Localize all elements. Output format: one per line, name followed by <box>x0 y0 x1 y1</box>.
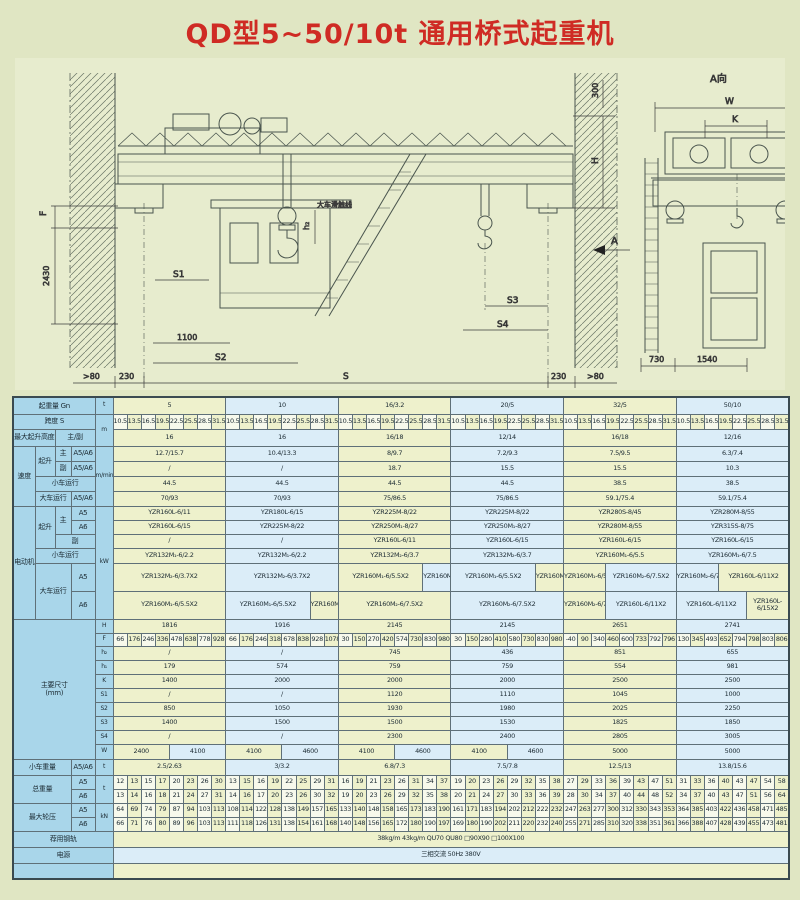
table-cell: 981 <box>676 660 789 674</box>
table-cell: 165 <box>324 803 338 817</box>
table-cell: 422 <box>718 803 732 817</box>
table-cell: 150 <box>465 633 479 646</box>
table-cell: 25.5 <box>183 414 197 429</box>
table-cell: 12/16 <box>676 429 789 446</box>
table-cell: 600 <box>620 633 634 646</box>
table-cell: 37 <box>437 775 451 789</box>
table-header-cell: S4 <box>95 730 113 744</box>
table-cell: 48 <box>648 789 662 803</box>
table-cell: 220 <box>521 817 535 831</box>
table-header-cell: 速度 <box>13 446 35 506</box>
table-cell: 13 <box>127 775 141 789</box>
table-cell: 980 <box>549 633 563 646</box>
table-cell: 47 <box>648 775 662 789</box>
table-header-cell: h₂ <box>95 646 113 660</box>
table-cell: 14 <box>226 789 240 803</box>
table-cell: 31.5 <box>662 414 676 429</box>
table-cell: 89 <box>169 817 183 831</box>
table-cell: 806 <box>775 633 789 646</box>
table-cell: 246 <box>141 633 155 646</box>
table-cell: 1500 <box>338 716 451 730</box>
table-cell: 202 <box>507 803 521 817</box>
table-row: 副A5/A6//18.715.515.510.3 <box>13 461 789 476</box>
table-cell: 40 <box>718 775 732 789</box>
table-cell: 30 <box>212 775 226 789</box>
table-cell: 1825 <box>564 716 677 730</box>
table-cell: 169 <box>451 817 465 831</box>
side-view-title: A向 <box>710 72 727 85</box>
table-cell: YZR160M₁-6/7.5X2 <box>535 563 563 591</box>
table-cell: 114 <box>240 803 254 817</box>
table-row: A6YZR160M₁-6/5.5X2YZR160M₁-6/5.5X2YZR160… <box>13 591 789 619</box>
table-cell: 25.5 <box>521 414 535 429</box>
table-cell: 36 <box>535 789 549 803</box>
table-header-cell: m <box>95 414 113 446</box>
table-row: K140020002000200025002500 <box>13 674 789 688</box>
table-cell: YZR160L-6/11 <box>113 506 226 520</box>
table-cell: 2805 <box>564 730 677 744</box>
table-row: 跨度 Sm10.513.516.519.522.525.528.531.510.… <box>13 414 789 429</box>
table-cell: 75/86.5 <box>338 491 451 506</box>
table-cell: 15.5 <box>564 461 677 476</box>
main-hook-icon <box>278 230 298 258</box>
table-cell: 21 <box>366 775 380 789</box>
table-cell: 388 <box>690 817 704 831</box>
dim-label-h2: h₂ <box>302 222 311 230</box>
table-cell: 5 <box>113 397 226 414</box>
elevation-view <box>70 73 617 384</box>
table-cell: 180 <box>409 817 423 831</box>
dim-label-s3: S3 <box>507 296 518 306</box>
table-cell: 36 <box>606 775 620 789</box>
table-header-cell: A6 <box>71 817 95 831</box>
table-header-cell: A5/A6 <box>71 759 95 775</box>
table-cell: 128 <box>268 803 282 817</box>
table-row: 最大起升高度主/副161616/1812/1416/1812/16 <box>13 429 789 446</box>
table-cell: 3/3.2 <box>226 759 339 775</box>
table-cell: 638 <box>183 633 197 646</box>
table-cell: 190 <box>423 817 437 831</box>
elevation-dimensions: F 2430 S1 1100 S2 >80 230 S 230 >80 300 … <box>39 80 630 388</box>
table-header-cell: A5 <box>71 775 95 789</box>
table-cell: 4100 <box>169 744 225 759</box>
table-cell: 410 <box>493 633 507 646</box>
table-header-cell <box>13 863 113 879</box>
table-cell: 171 <box>465 803 479 817</box>
dim-label-730: 730 <box>649 355 664 364</box>
right-wall-hatch <box>575 73 617 368</box>
table-cell: 33 <box>521 789 535 803</box>
table-cell: 15 <box>240 775 254 789</box>
table-cell: 310 <box>606 817 620 831</box>
table-cell: 1980 <box>451 702 564 716</box>
table-cell: 75/86.5 <box>451 491 564 506</box>
table-cell: YZR132M₁-6/2.2 <box>226 548 339 563</box>
table-cell: 436 <box>732 803 746 817</box>
table-cell: 149 <box>296 803 310 817</box>
dim-label-230-right: 230 <box>551 372 566 381</box>
table-cell: 28.5 <box>648 414 662 429</box>
table-cell: 574 <box>226 660 339 674</box>
table-cell: 25.5 <box>634 414 648 429</box>
table-cell: 345 <box>690 633 704 646</box>
table-cell: 554 <box>564 660 677 674</box>
table-cell: YZR250M₁-8/27 <box>338 520 451 534</box>
table-cell: YZR160L-6/15X2 <box>747 591 789 619</box>
table-header-cell: 起重量 Gn <box>13 397 95 414</box>
table-cell: 59.1/75.4 <box>564 491 677 506</box>
table-cell: / <box>226 730 339 744</box>
table-header-cell: 电动机 <box>13 506 35 619</box>
table-cell: 37 <box>606 789 620 803</box>
table-cell: 30 <box>578 789 592 803</box>
table-cell: 13.5 <box>465 414 479 429</box>
table-cell: 247 <box>564 803 578 817</box>
table-cell: 126 <box>254 817 268 831</box>
table-row: 电动机起升主A5kWYZR160L-6/11YZR180L-6/15YZR225… <box>13 506 789 520</box>
table-header-cell: A5/A6 <box>71 446 95 461</box>
table-cell: 96 <box>183 817 197 831</box>
table-cell: 343 <box>648 803 662 817</box>
table-cell: 157 <box>310 803 324 817</box>
table-cell: 759 <box>451 660 564 674</box>
table-cell: 2000 <box>451 674 564 688</box>
table-cell: 22.5 <box>282 414 296 429</box>
table-header-cell: W <box>95 744 113 759</box>
table-cell: 20 <box>352 789 366 803</box>
table-header-cell: S3 <box>95 716 113 730</box>
table-cell: 16/3.2 <box>338 397 451 414</box>
table-cell: 176 <box>127 633 141 646</box>
table-cell: 22.5 <box>507 414 521 429</box>
table-cell: 493 <box>704 633 718 646</box>
table-header-cell: h₁ <box>95 660 113 674</box>
table-cell: 31 <box>409 775 423 789</box>
table-cell: YZR160M₁-6/7.5X2 <box>310 591 338 619</box>
table-cell: 28.5 <box>423 414 437 429</box>
table-cell: 71 <box>127 817 141 831</box>
table-cell: 30 <box>338 633 352 646</box>
table-cell: 436 <box>451 646 564 660</box>
cab-and-stairs <box>211 154 426 316</box>
table-header-cell: 跨度 S <box>13 414 95 429</box>
table-cell: 34 <box>423 775 437 789</box>
table-header-cell: A5/A6 <box>71 491 95 506</box>
table-cell: 19 <box>268 775 282 789</box>
crane-drawing-area: F 2430 S1 1100 S2 >80 230 S 230 >80 300 … <box>15 58 785 390</box>
table-cell: YZR225M-8/22 <box>338 506 451 520</box>
table-row: h₁179574759759554981 <box>13 660 789 674</box>
table-cell: 33 <box>592 775 606 789</box>
table-cell: 2.5/2.63 <box>113 759 226 775</box>
table-row: h₂//745436851655 <box>13 646 789 660</box>
table-cell: 148 <box>352 817 366 831</box>
table-cell: 471 <box>761 803 775 817</box>
table-row: 副//YZR160L-6/11YZR160L-6/15YZR160L-6/15Y… <box>13 534 789 548</box>
table-cell: YZR160L-6/15 <box>676 534 789 548</box>
table-header-cell: A6 <box>71 789 95 803</box>
table-cell: YZR132M₂-6/3.7X2 <box>226 563 339 591</box>
table-cell: 108 <box>226 803 240 817</box>
table-header-cell: 最大起升高度 <box>13 429 55 446</box>
view-arrow-label: A <box>611 236 618 247</box>
table-cell: 16.5 <box>141 414 155 429</box>
table-cell: 12/14 <box>451 429 564 446</box>
table-cell: / <box>113 730 226 744</box>
table-cell: 20 <box>465 775 479 789</box>
table-cell: 4600 <box>395 744 451 759</box>
table-cell: 222 <box>535 803 549 817</box>
table-cell: 13.5 <box>690 414 704 429</box>
table-cell: 150 <box>352 633 366 646</box>
table-cell: 16/18 <box>564 429 677 446</box>
table-cell: 32 <box>409 789 423 803</box>
table-cell: 759 <box>338 660 451 674</box>
table-cell: 20 <box>451 789 465 803</box>
table-cell: 652 <box>718 633 732 646</box>
table-cell: 403 <box>704 803 718 817</box>
table-header-cell: t <box>95 397 113 414</box>
table-cell: 1916 <box>226 619 339 633</box>
table-header-cell: 小车运行 <box>35 476 95 491</box>
table-header-cell: 主要尺寸 (mm) <box>13 619 95 759</box>
table-cell: 655 <box>676 646 789 660</box>
table-cell: 730 <box>409 633 423 646</box>
table-cell: 285 <box>592 817 606 831</box>
table-cell: 928 <box>212 633 226 646</box>
table-cell: 246 <box>254 633 268 646</box>
table-cell: 13 <box>226 775 240 789</box>
table-cell: 30 <box>310 789 324 803</box>
hook-pulley <box>278 207 296 225</box>
table-cell: 18 <box>155 789 169 803</box>
table-header-cell: A5 <box>71 506 95 520</box>
table-cell: / <box>113 688 226 702</box>
table-cell: 428 <box>718 817 732 831</box>
table-cell: 35 <box>535 775 549 789</box>
table-cell: 1110 <box>451 688 564 702</box>
table-cell: 22.5 <box>395 414 409 429</box>
table-cell: 1000 <box>676 688 789 702</box>
dim-label-s1: S1 <box>173 270 184 280</box>
table-cell: 36 <box>704 775 718 789</box>
table-cell: 17 <box>155 775 169 789</box>
table-cell: YZR132M₂-6/3.7 <box>338 548 451 563</box>
table-cell: 851 <box>564 646 677 660</box>
table-cell: 19.5 <box>718 414 732 429</box>
table-row: 总重量A5t1213151720232630131516192225293116… <box>13 775 789 789</box>
table-cell: 40 <box>704 789 718 803</box>
table-cell: 5000 <box>564 744 677 759</box>
table-cell: 168 <box>324 817 338 831</box>
table-cell: 4100 <box>451 744 507 759</box>
table-cell: 31 <box>324 775 338 789</box>
table-row: 大车运行A5/A670/9370/9375/86.575/86.559.1/75… <box>13 491 789 506</box>
table-cell: 38.5 <box>564 476 677 491</box>
table-cell: YZR160L-6/15 <box>564 534 677 548</box>
table-cell: 2300 <box>338 730 451 744</box>
table-cell: 12 <box>113 775 127 789</box>
table-cell: 13.5 <box>240 414 254 429</box>
table-cell: 31.5 <box>437 414 451 429</box>
table-cell: 103 <box>198 803 212 817</box>
table-cell: 27 <box>564 775 578 789</box>
table-cell: 66 <box>113 817 127 831</box>
table-cell: 16.5 <box>704 414 718 429</box>
table-cell: 458 <box>747 803 761 817</box>
table-cell: 1045 <box>564 688 677 702</box>
table-cell: 29 <box>310 775 324 789</box>
table-cell: 733 <box>634 633 648 646</box>
table-cell: 13.5 <box>352 414 366 429</box>
table-row: F661762463364786387789286617624631867883… <box>13 633 789 646</box>
table-cell: 353 <box>662 803 676 817</box>
table-cell: 156 <box>366 817 380 831</box>
table-row <box>13 863 789 879</box>
table-cell: 138 <box>282 803 296 817</box>
table-cell: YZR132M₁-6/2.2 <box>113 548 226 563</box>
table-cell: 2000 <box>226 674 339 688</box>
table-header-cell: kN <box>95 803 113 831</box>
table-cell: 1078 <box>324 633 338 646</box>
table-cell: 90 <box>578 633 592 646</box>
table-cell: 16.5 <box>254 414 268 429</box>
table-cell: 31 <box>676 775 690 789</box>
table-cell: 10.5 <box>226 414 240 429</box>
table-cell: 19.5 <box>493 414 507 429</box>
table-cell: 10.5 <box>564 414 578 429</box>
table-cell: YZR160L-6/11X2 <box>676 591 746 619</box>
table-row: 主要尺寸 (mm)H181619162145214526512741 <box>13 619 789 633</box>
table-cell: 118 <box>240 817 254 831</box>
table-cell: 140 <box>338 817 352 831</box>
table-cell: 51 <box>662 775 676 789</box>
table-cell: 197 <box>437 817 451 831</box>
table-cell: 23 <box>366 789 380 803</box>
side-view <box>645 132 785 353</box>
table-cell: 18.7 <box>338 461 451 476</box>
table-cell: 27 <box>198 789 212 803</box>
table-header-cell: kW <box>95 506 113 619</box>
table-cell: 232 <box>535 817 549 831</box>
table-cell: 4100 <box>338 744 394 759</box>
table-cell: 16 <box>113 429 226 446</box>
table-cell: 580 <box>507 633 521 646</box>
table-cell: 10.5 <box>113 414 127 429</box>
table-cell: 202 <box>493 817 507 831</box>
table-cell: 33 <box>690 775 704 789</box>
table-header-cell: 主 <box>55 506 71 534</box>
table-cell: 336 <box>155 633 169 646</box>
table-cell: 7.5/7.8 <box>451 759 564 775</box>
table-cell: YZR160M₂-6/7.5X2 <box>338 591 451 619</box>
table-cell: 43 <box>634 775 648 789</box>
table-cell: 173 <box>409 803 423 817</box>
table-cell: YZR280M-8/55 <box>564 520 677 534</box>
table-header-cell: 主 <box>55 446 71 461</box>
table-cell: YZR160M₁-6/5.5 <box>564 548 677 563</box>
table-cell: 4600 <box>507 744 563 759</box>
table-cell: 460 <box>606 633 620 646</box>
side-view-dimensions: A向 W K 730 1540 <box>641 72 785 372</box>
table-row: 最大轮压A5kN64697479879410311310811412212813… <box>13 803 789 817</box>
table-cell: YZR160M₁-6/5.5X2 <box>226 591 310 619</box>
table-cell: 76 <box>141 817 155 831</box>
table-row: A613141618212427311416172023263032192023… <box>13 789 789 803</box>
table-cell: 478 <box>169 633 183 646</box>
table-cell: 19.5 <box>606 414 620 429</box>
table-cell: 74 <box>141 803 155 817</box>
dim-label-230-left: 230 <box>119 372 134 381</box>
table-cell: 1500 <box>226 716 339 730</box>
table-cell: 172 <box>395 817 409 831</box>
conductor-line-label: 大车滑触线 <box>317 200 352 209</box>
table-cell: 194 <box>493 803 507 817</box>
table-cell: 34 <box>676 789 690 803</box>
table-cell: 21 <box>169 789 183 803</box>
trolley-assembly <box>165 113 298 258</box>
table-cell: 1850 <box>676 716 789 730</box>
table-cell: 16 <box>254 775 268 789</box>
table-cell: 2400 <box>451 730 564 744</box>
table-row: 小车重量A5/A6t2.5/2.633/3.26.8/7.37.5/7.812.… <box>13 759 789 775</box>
table-cell: 7.5/9.5 <box>564 446 677 461</box>
table-cell: 2400 <box>113 744 169 759</box>
table-cell: 32 <box>521 775 535 789</box>
table-header-cell: A6 <box>71 520 95 534</box>
table-cell: 43 <box>718 789 732 803</box>
table-header-cell: H <box>95 619 113 633</box>
table-cell: 25.5 <box>409 414 423 429</box>
table-cell: 47 <box>732 789 746 803</box>
table-cell: 796 <box>662 633 676 646</box>
table-cell: 2651 <box>564 619 677 633</box>
table-cell: 232 <box>549 803 563 817</box>
table-cell: 31.5 <box>324 414 338 429</box>
table-cell: 29 <box>395 789 409 803</box>
table-cell: 13.8/15.6 <box>676 759 789 775</box>
table-cell: 165 <box>395 803 409 817</box>
table-cell: 2145 <box>338 619 451 633</box>
table-cell: 51 <box>747 789 761 803</box>
table-cell: 23 <box>183 775 197 789</box>
table-cell: YZR225M-8/22 <box>226 520 339 534</box>
table-cell: 8/9.7 <box>338 446 451 461</box>
table-cell: 64 <box>775 789 789 803</box>
ladder <box>645 158 658 353</box>
table-header-cell: m/min <box>95 446 113 506</box>
table-cell: 69 <box>127 803 141 817</box>
table-cell: 103 <box>198 817 212 831</box>
table-cell: 31 <box>212 789 226 803</box>
table-row: A666717680899610311311111812613113815416… <box>13 817 789 831</box>
table-cell: 13.5 <box>127 414 141 429</box>
dim-label-s2: S2 <box>215 353 226 363</box>
table-cell: 38.5 <box>676 476 789 491</box>
table-cell: 1530 <box>451 716 564 730</box>
table-cell: 420 <box>381 633 395 646</box>
table-row: 大车运行A5YZR132M₂-6/3.7X2YZR132M₂-6/3.7X2YZ… <box>13 563 789 591</box>
page-title: QD型5~50/10t 通用桥式起重机 <box>0 12 800 51</box>
table-cell: 28.5 <box>761 414 775 429</box>
table-cell: 80 <box>155 817 169 831</box>
table-cell: 407 <box>704 817 718 831</box>
table-cell: 439 <box>732 817 746 831</box>
table-cell: 25.5 <box>296 414 310 429</box>
table-cell: 17 <box>254 789 268 803</box>
dim-label-f: F <box>39 211 49 216</box>
table-cell: 22.5 <box>732 414 746 429</box>
